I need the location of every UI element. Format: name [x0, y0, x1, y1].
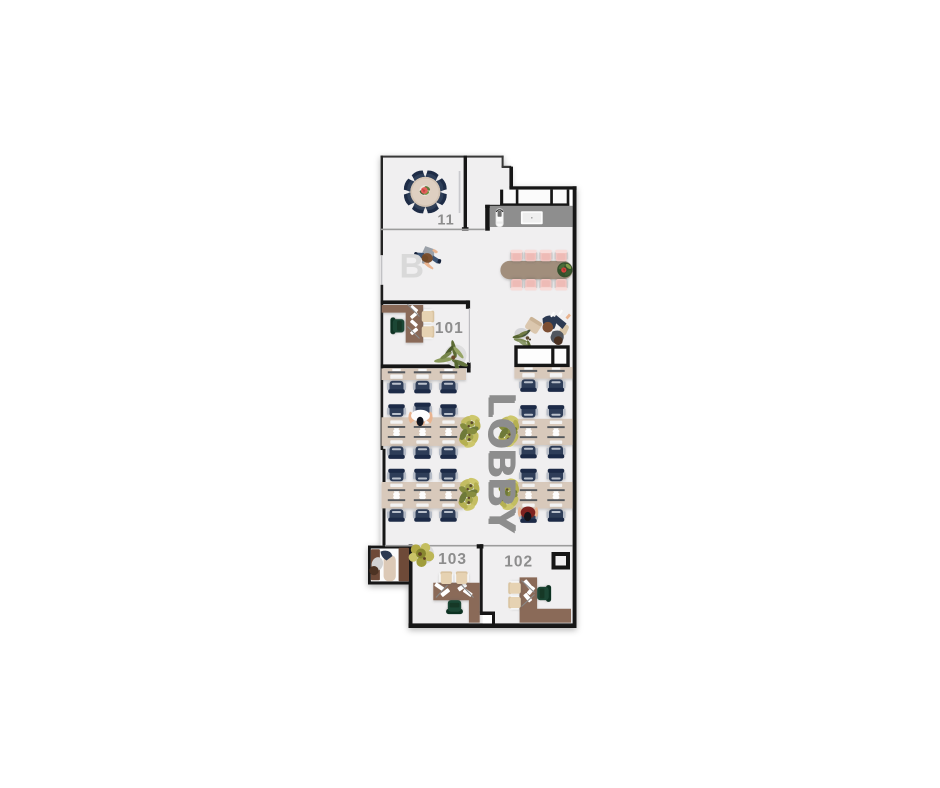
- svg-text:LOBBY: LOBBY: [481, 393, 523, 534]
- svg-text:102: 102: [504, 554, 533, 571]
- svg-text:101: 101: [435, 320, 464, 337]
- svg-text:B: B: [400, 248, 425, 286]
- svg-text:103: 103: [438, 551, 467, 568]
- svg-text:11: 11: [437, 213, 454, 229]
